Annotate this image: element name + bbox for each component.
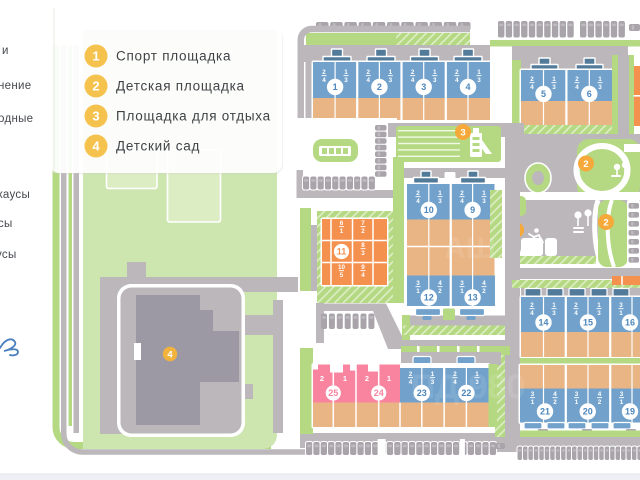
svg-text:1: 1 bbox=[343, 374, 347, 383]
svg-text:2: 2 bbox=[460, 190, 464, 197]
svg-text:2: 2 bbox=[322, 69, 326, 76]
svg-text:4: 4 bbox=[167, 349, 173, 360]
svg-text:14: 14 bbox=[538, 318, 548, 328]
svg-text:25: 25 bbox=[328, 388, 338, 398]
svg-text:1: 1 bbox=[619, 310, 623, 317]
svg-text:4: 4 bbox=[416, 198, 420, 205]
svg-text:усы: усы bbox=[0, 249, 17, 261]
svg-text:1: 1 bbox=[92, 49, 99, 64]
svg-text:2: 2 bbox=[438, 288, 442, 295]
svg-text:4: 4 bbox=[575, 84, 579, 91]
svg-text:15: 15 bbox=[583, 318, 593, 328]
svg-text:2: 2 bbox=[482, 288, 486, 295]
svg-text:4: 4 bbox=[574, 310, 578, 317]
svg-text:2: 2 bbox=[377, 82, 382, 92]
svg-text:и: и bbox=[2, 45, 9, 57]
svg-text:2: 2 bbox=[574, 302, 578, 309]
svg-text:2: 2 bbox=[92, 79, 99, 94]
svg-text:4: 4 bbox=[322, 77, 326, 84]
svg-text:4: 4 bbox=[482, 280, 486, 287]
svg-text:3: 3 bbox=[460, 127, 465, 138]
svg-text:3: 3 bbox=[421, 82, 426, 92]
svg-text:Спорт площадка: Спорт площадка bbox=[116, 49, 231, 64]
svg-text:3: 3 bbox=[460, 280, 464, 287]
svg-text:1: 1 bbox=[597, 302, 601, 309]
svg-text:2: 2 bbox=[320, 374, 324, 383]
svg-text:13: 13 bbox=[468, 293, 478, 303]
svg-text:4: 4 bbox=[530, 310, 534, 317]
svg-text:1: 1 bbox=[575, 399, 579, 406]
svg-text:нение: нение bbox=[0, 80, 31, 92]
svg-text:Площадка для отдыха: Площадка для отдыха bbox=[116, 109, 271, 124]
svg-text:Детская площадка: Детская площадка bbox=[116, 79, 245, 94]
svg-text:3: 3 bbox=[416, 280, 420, 287]
svg-text:3: 3 bbox=[361, 250, 365, 257]
svg-text:2: 2 bbox=[416, 190, 420, 197]
svg-text:11: 11 bbox=[337, 247, 347, 257]
svg-text:4: 4 bbox=[411, 77, 415, 84]
svg-text:1: 1 bbox=[620, 399, 624, 406]
svg-text:1: 1 bbox=[438, 190, 442, 197]
svg-text:2: 2 bbox=[583, 159, 588, 170]
svg-text:АШ: АШ bbox=[444, 232, 496, 265]
svg-text:10: 10 bbox=[338, 264, 346, 271]
svg-text:2: 2 bbox=[603, 217, 608, 228]
svg-text:4: 4 bbox=[438, 280, 442, 287]
svg-text:4: 4 bbox=[598, 391, 602, 398]
svg-text:1: 1 bbox=[477, 69, 481, 76]
svg-text:4: 4 bbox=[460, 198, 464, 205]
svg-text:1: 1 bbox=[389, 69, 393, 76]
svg-text:4: 4 bbox=[530, 84, 534, 91]
svg-text:2: 2 bbox=[553, 399, 557, 406]
svg-text:1: 1 bbox=[552, 302, 556, 309]
svg-text:8: 8 bbox=[361, 242, 365, 249]
svg-text:2: 2 bbox=[411, 69, 415, 76]
svg-text:3: 3 bbox=[531, 391, 535, 398]
svg-text:2: 2 bbox=[575, 76, 579, 83]
svg-text:7: 7 bbox=[361, 220, 365, 227]
svg-text:1: 1 bbox=[460, 288, 464, 295]
svg-text:1: 1 bbox=[598, 76, 602, 83]
svg-text:ПД 980: ПД 980 bbox=[411, 368, 526, 406]
svg-text:10: 10 bbox=[424, 205, 434, 215]
svg-text:2: 2 bbox=[361, 228, 365, 235]
svg-text:одные: одные bbox=[0, 113, 33, 125]
svg-text:3: 3 bbox=[552, 310, 556, 317]
svg-text:2: 2 bbox=[365, 374, 369, 383]
svg-text:1: 1 bbox=[482, 190, 486, 197]
svg-text:5: 5 bbox=[541, 89, 546, 99]
svg-text:2: 2 bbox=[530, 302, 534, 309]
svg-text:2: 2 bbox=[455, 69, 459, 76]
svg-text:Детский сад: Детский сад bbox=[116, 139, 200, 154]
svg-text:1: 1 bbox=[344, 69, 348, 76]
svg-text:3: 3 bbox=[597, 310, 601, 317]
svg-text:4: 4 bbox=[465, 82, 470, 92]
svg-text:3: 3 bbox=[598, 84, 602, 91]
svg-text:9: 9 bbox=[361, 264, 365, 271]
svg-text:хаусы: хаусы bbox=[0, 189, 30, 201]
svg-text:19: 19 bbox=[625, 407, 635, 417]
svg-text:2: 2 bbox=[598, 399, 602, 406]
svg-text:1: 1 bbox=[552, 76, 556, 83]
svg-text:сы: сы bbox=[0, 218, 13, 230]
svg-text:12: 12 bbox=[424, 293, 434, 303]
svg-text:2: 2 bbox=[367, 69, 371, 76]
svg-text:21: 21 bbox=[540, 407, 550, 417]
svg-text:1: 1 bbox=[433, 69, 437, 76]
svg-text:3: 3 bbox=[620, 391, 624, 398]
svg-text:4: 4 bbox=[92, 139, 100, 154]
svg-text:4: 4 bbox=[553, 391, 557, 398]
svg-text:6: 6 bbox=[587, 89, 592, 99]
svg-text:4: 4 bbox=[367, 77, 371, 84]
svg-text:3: 3 bbox=[433, 77, 437, 84]
svg-text:3: 3 bbox=[552, 84, 556, 91]
svg-text:3: 3 bbox=[477, 77, 481, 84]
svg-text:3: 3 bbox=[482, 198, 486, 205]
svg-text:5: 5 bbox=[340, 272, 344, 279]
svg-text:1: 1 bbox=[340, 228, 344, 235]
svg-text:3: 3 bbox=[92, 109, 99, 124]
svg-text:1: 1 bbox=[387, 374, 391, 383]
svg-text:3: 3 bbox=[344, 77, 348, 84]
svg-text:4: 4 bbox=[455, 77, 459, 84]
svg-text:9: 9 bbox=[470, 205, 475, 215]
svg-text:16: 16 bbox=[625, 318, 635, 328]
svg-text:3: 3 bbox=[575, 391, 579, 398]
svg-text:2: 2 bbox=[530, 76, 534, 83]
svg-text:24: 24 bbox=[374, 388, 384, 398]
svg-text:6: 6 bbox=[340, 220, 344, 227]
svg-text:4: 4 bbox=[361, 272, 365, 279]
svg-text:3: 3 bbox=[389, 77, 393, 84]
svg-text:3: 3 bbox=[619, 302, 623, 309]
svg-text:1: 1 bbox=[333, 82, 338, 92]
svg-text:1: 1 bbox=[531, 399, 535, 406]
svg-text:1: 1 bbox=[416, 288, 420, 295]
svg-text:20: 20 bbox=[583, 407, 593, 417]
svg-text:3: 3 bbox=[438, 198, 442, 205]
